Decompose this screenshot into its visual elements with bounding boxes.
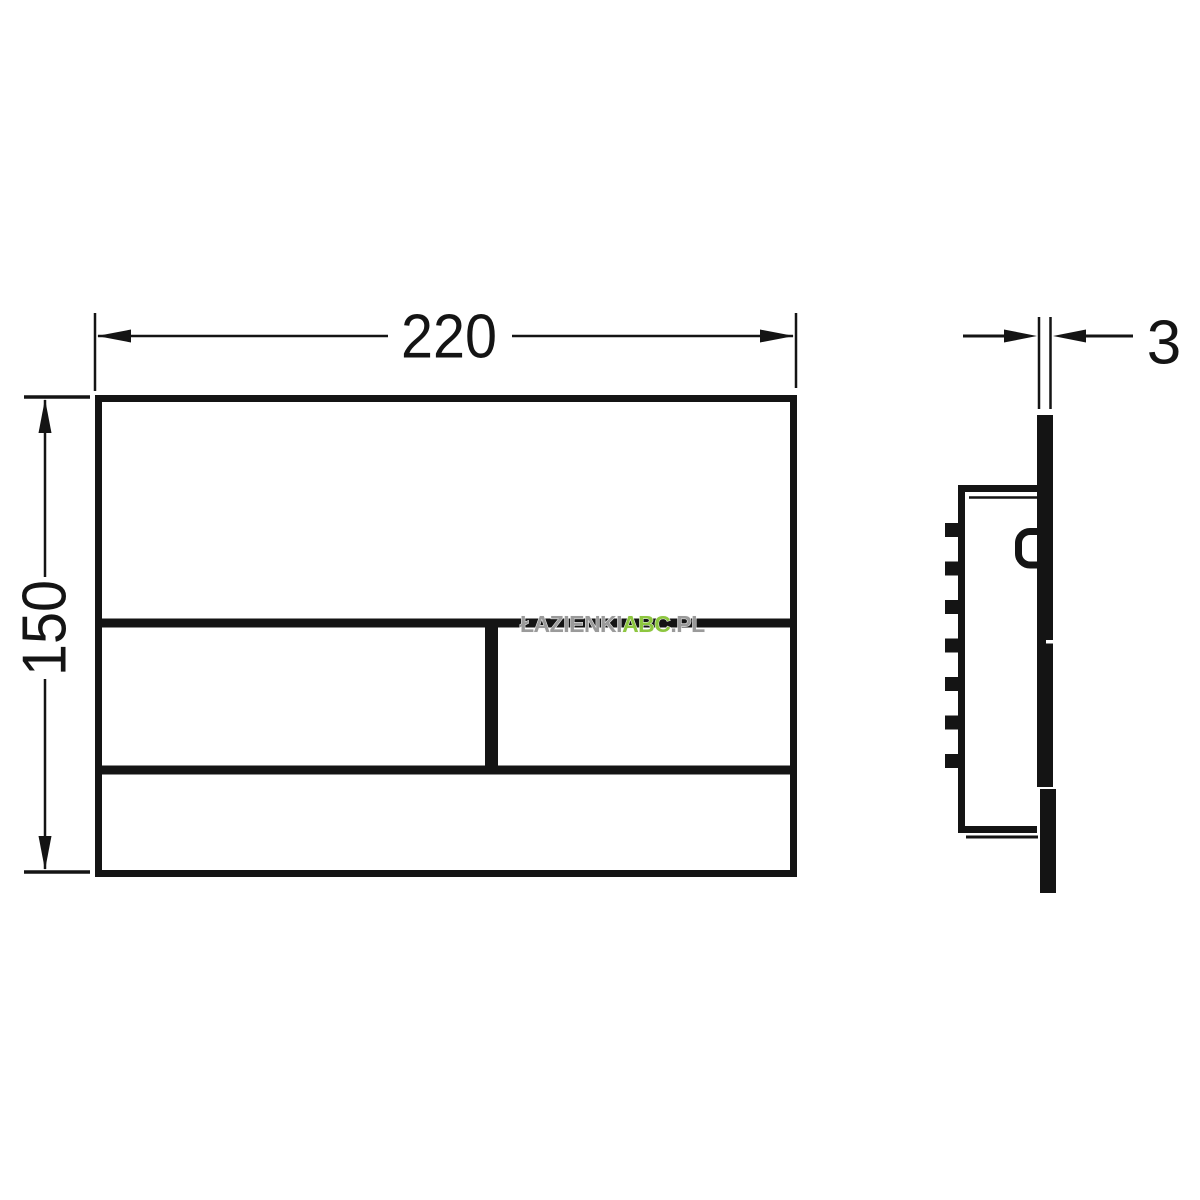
- watermark-text-left: ŁAZIENKI: [520, 611, 622, 637]
- side-view: [945, 415, 1056, 893]
- mounting-tabs: [945, 523, 959, 768]
- arrowhead-right: [760, 330, 794, 343]
- plate-profile: [1037, 415, 1056, 893]
- arrowhead-toward-right: [1004, 330, 1037, 343]
- width-dim-label: 220: [401, 303, 497, 372]
- mounting-tab: [945, 562, 959, 576]
- arrowhead-down: [39, 836, 52, 870]
- plate-profile-upper: [1037, 415, 1053, 787]
- arrowhead-left: [97, 330, 131, 343]
- arrowhead-up: [39, 399, 52, 433]
- dimension-width: 220: [95, 303, 796, 392]
- mounting-tab: [945, 677, 959, 691]
- watermark-text-right: .PL: [670, 611, 705, 637]
- arrowhead-toward-left: [1053, 330, 1086, 343]
- dimension-thickness: 3: [963, 309, 1181, 410]
- mounting-tab: [945, 754, 959, 768]
- dimension-height: 150: [11, 397, 91, 872]
- mounting-tab: [945, 600, 959, 614]
- drawing-canvas: 220 150: [0, 0, 1200, 1200]
- plate-button-notch: [1046, 640, 1054, 644]
- mounting-tab: [945, 523, 959, 537]
- mounting-tab: [945, 639, 959, 653]
- thickness-dim-label: 3: [1147, 309, 1181, 378]
- mounting-tab: [945, 716, 959, 730]
- height-dim-label: 150: [11, 580, 80, 676]
- technical-drawing: 220 150: [0, 0, 1200, 1200]
- watermark: ŁAZIENKIABC.PL: [520, 611, 705, 637]
- watermark-text-brand: ABC: [622, 611, 670, 637]
- plate-profile-lower: [1040, 789, 1056, 893]
